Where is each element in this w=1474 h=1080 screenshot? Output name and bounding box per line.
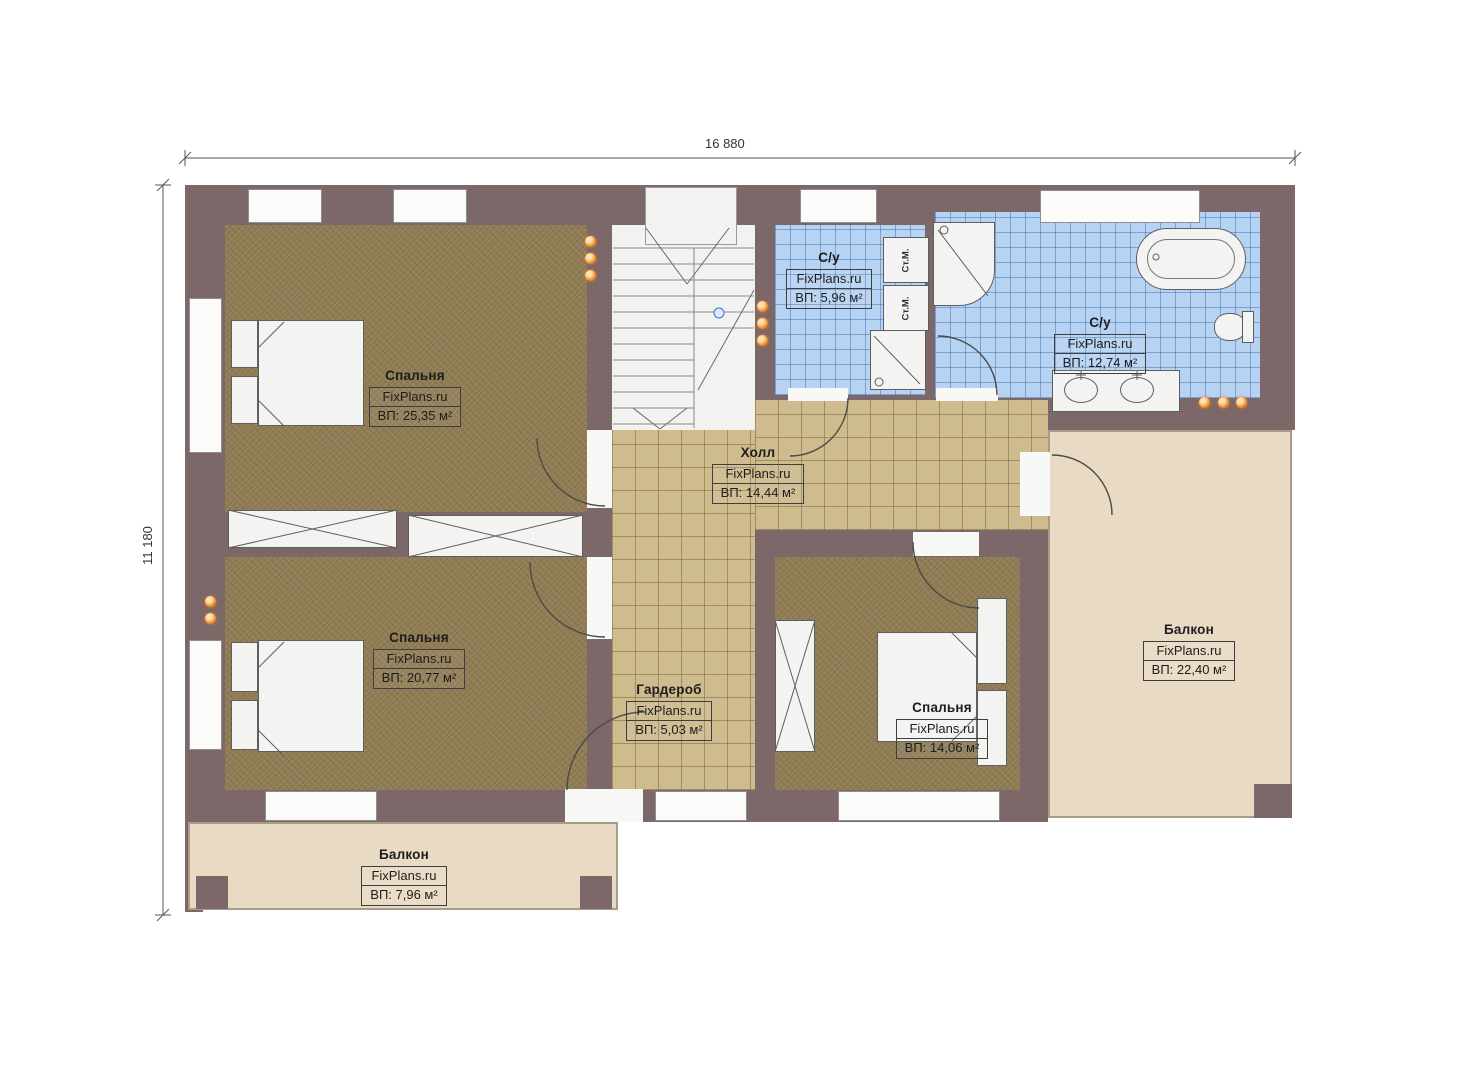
outlet-dot xyxy=(205,613,216,624)
outlet-dot xyxy=(757,301,768,312)
room-area: ВП: 5,96 м² xyxy=(787,289,870,308)
window xyxy=(189,298,222,453)
nightstand xyxy=(231,642,258,692)
watermark-text: FixPlans.ru xyxy=(362,867,445,887)
outlet-dot xyxy=(757,318,768,329)
room-area: ВП: 25,35 м² xyxy=(370,407,461,426)
window xyxy=(655,791,747,821)
outlet-dot xyxy=(205,596,216,607)
bed xyxy=(258,320,364,426)
room-label-bathroom-small: С/у FixPlans.ru ВП: 5,96 м² xyxy=(784,250,874,309)
bedroom-3-door-opening xyxy=(913,532,979,556)
washing-machine: Ст.М. xyxy=(883,285,929,331)
outlet-dot xyxy=(585,253,596,264)
bathtub-inner xyxy=(1147,239,1235,279)
outlet-dot xyxy=(757,335,768,346)
outlet-dot xyxy=(585,270,596,281)
room-label-box: FixPlans.ru ВП: 25,35 м² xyxy=(369,387,462,428)
nightstand xyxy=(231,376,258,424)
watermark-text: FixPlans.ru xyxy=(787,270,870,290)
room-label-bedroom-1: Спальня FixPlans.ru ВП: 25,35 м² xyxy=(356,368,474,427)
nightstand xyxy=(977,598,1007,684)
shower-tray xyxy=(933,222,995,306)
room-name: Спальня xyxy=(886,700,998,716)
dimension-width-label: 16 880 xyxy=(705,136,745,151)
room-name: Балкон xyxy=(1138,622,1240,638)
bathroom-large-door-opening xyxy=(936,388,998,401)
balcony-bottom-post-left xyxy=(196,876,228,909)
dimension-height-label: 11 180 xyxy=(140,526,155,565)
outlet-dot xyxy=(1218,397,1229,408)
room-area: ВП: 14,44 м² xyxy=(713,484,804,503)
floor-plan-canvas: 16 880 11 180 Ст.М. xyxy=(0,0,1474,1080)
watermark-text: FixPlans.ru xyxy=(897,720,988,740)
window xyxy=(800,189,877,223)
watermark-text: FixPlans.ru xyxy=(370,388,461,408)
room-area: ВП: 14,06 м² xyxy=(897,739,988,758)
bathroom-small-door-opening xyxy=(788,388,848,401)
room-name: Спальня xyxy=(356,368,474,384)
room-area: ВП: 7,96 м² xyxy=(362,886,445,905)
stairwell-floor xyxy=(612,225,755,430)
watermark-text: FixPlans.ru xyxy=(713,465,804,485)
room-label-box: FixPlans.ru ВП: 14,06 м² xyxy=(896,719,989,760)
sink xyxy=(1064,377,1098,403)
watermark-text: FixPlans.ru xyxy=(1144,642,1235,662)
balcony-door-opening xyxy=(565,789,643,822)
bedroom-2-door-opening xyxy=(587,557,612,639)
room-label-bedroom-3: Спальня FixPlans.ru ВП: 14,06 м² xyxy=(886,700,998,759)
room-label-box: FixPlans.ru ВП: 5,03 м² xyxy=(626,701,711,742)
room-label-wardrobe: Гардероб FixPlans.ru ВП: 5,03 м² xyxy=(618,682,720,741)
nightstand xyxy=(231,320,258,368)
room-name: Спальня xyxy=(360,630,478,646)
room-name: С/у xyxy=(1050,315,1150,331)
room-label-bathroom-large: С/у FixPlans.ru ВП: 12,74 м² xyxy=(1050,315,1150,374)
stair-landing xyxy=(645,187,737,245)
room-label-box: FixPlans.ru ВП: 14,44 м² xyxy=(712,464,805,505)
room-label-balcony-bottom: Балкон FixPlans.ru ВП: 7,96 м² xyxy=(354,847,454,906)
room-label-box: FixPlans.ru ВП: 5,96 м² xyxy=(786,269,871,310)
room-area: ВП: 22,40 м² xyxy=(1144,661,1235,680)
room-label-hall: Холл FixPlans.ru ВП: 14,44 м² xyxy=(703,445,813,504)
window xyxy=(189,640,222,750)
room-label-box: FixPlans.ru ВП: 20,77 м² xyxy=(373,649,466,690)
room-area: ВП: 5,03 м² xyxy=(627,721,710,740)
balcony-bottom-post-right xyxy=(580,876,612,909)
washing-machine-label: Ст.М. xyxy=(901,248,912,272)
outlet-dot xyxy=(585,236,596,247)
watermark-text: FixPlans.ru xyxy=(627,702,710,722)
room-name: Гардероб xyxy=(618,682,720,698)
watermark-text: FixPlans.ru xyxy=(374,650,465,670)
window xyxy=(393,189,467,223)
washing-machine: Ст.М. xyxy=(883,237,929,283)
room-name: С/у xyxy=(784,250,874,266)
window xyxy=(248,189,322,223)
room-label-box: FixPlans.ru ВП: 22,40 м² xyxy=(1143,641,1236,682)
window xyxy=(838,791,1000,821)
bed xyxy=(258,640,364,752)
room-name: Балкон xyxy=(354,847,454,863)
room-label-balcony-right: Балкон FixPlans.ru ВП: 22,40 м² xyxy=(1138,622,1240,681)
closet xyxy=(775,620,815,752)
room-label-box: FixPlans.ru ВП: 12,74 м² xyxy=(1054,334,1147,375)
sink xyxy=(1120,377,1154,403)
closet xyxy=(228,510,397,548)
nightstand xyxy=(231,700,258,750)
toilet-tank xyxy=(1242,311,1254,343)
bedroom-1-door-opening xyxy=(587,430,612,508)
balcony-right-door-opening xyxy=(1020,452,1050,516)
watermark-text: FixPlans.ru xyxy=(1055,335,1146,355)
room-area: ВП: 20,77 м² xyxy=(374,669,465,688)
closet xyxy=(408,515,583,557)
window xyxy=(1040,190,1200,223)
room-label-bedroom-2: Спальня FixPlans.ru ВП: 20,77 м² xyxy=(360,630,478,689)
window xyxy=(265,791,377,821)
room-name: Холл xyxy=(703,445,813,461)
outlet-dot xyxy=(1199,397,1210,408)
balcony-right-post xyxy=(1254,784,1292,818)
room-area: ВП: 12,74 м² xyxy=(1055,354,1146,373)
room-label-box: FixPlans.ru ВП: 7,96 м² xyxy=(361,866,446,907)
outlet-dot xyxy=(1236,397,1247,408)
washing-machine-label: Ст.М. xyxy=(901,296,912,320)
shower-tray xyxy=(870,330,926,390)
